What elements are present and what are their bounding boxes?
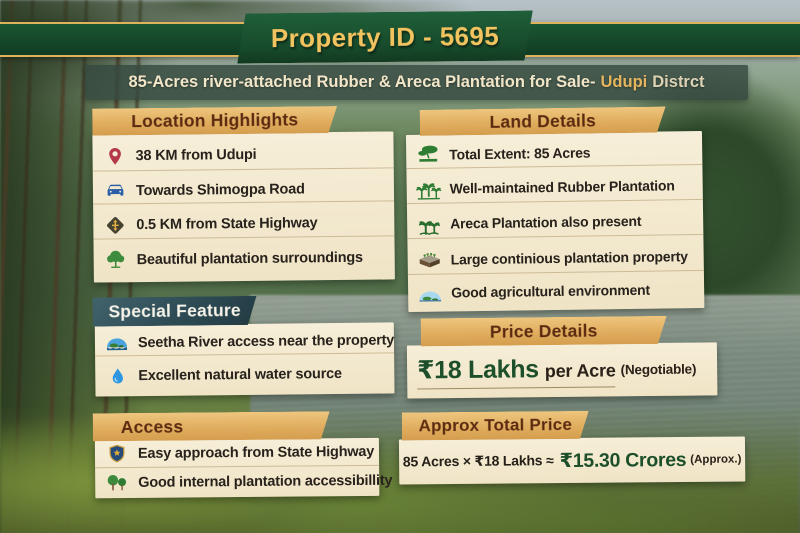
land-details-panel: Total Extent: 85 Acres Well-ma — [406, 131, 704, 312]
list-item: Excellent natural water source — [95, 359, 394, 390]
subtitle-location: Udupi — [601, 73, 648, 92]
list-item: Well-maintained Rubber Plantation — [407, 171, 703, 204]
price-formula: 85 Acres × ₹18 Lakhs ≈ — [403, 452, 554, 470]
two-trees-icon — [103, 472, 131, 495]
price-details-panel: ₹18 Lakhs per Acre (Negotiable) — [407, 342, 718, 398]
section-location-highlights: Location Highlights 38 KM from Udupi Tow… — [92, 105, 395, 282]
areca-palm-icon — [415, 212, 443, 236]
total-price-note: (Approx.) — [690, 453, 741, 465]
tree-icon — [102, 249, 130, 273]
item-text: Seetha River access near the property — [138, 332, 394, 351]
item-text: Areca Plantation also present — [450, 213, 641, 232]
price-unit: per Acre — [545, 360, 616, 382]
price-line: ₹18 Lakhs per Acre — [417, 353, 616, 389]
list-item: Good internal plantation accessibillity — [95, 467, 379, 496]
section-approx-total-price: Approx Total Price 85 Acres × ₹18 Lakhs … — [399, 410, 738, 485]
list-item: Seetha River access near the property — [95, 328, 394, 356]
item-text: Total Extent: 85 Acres — [449, 144, 590, 162]
land-details-title: Land Details — [420, 106, 666, 135]
section-price-details: Price Details ₹18 Lakhs per Acre (Negoti… — [407, 315, 708, 398]
road-sign-icon — [101, 214, 129, 236]
map-pin-icon — [100, 144, 128, 168]
approx-total-price-title: Approx Total Price — [402, 411, 589, 441]
item-text: 0.5 KM from State Highway — [136, 215, 317, 233]
planter-bed-icon — [416, 247, 444, 271]
section-land-details: Land Details Total Extent: 85 Acres — [406, 106, 705, 312]
price-details-title: Price Details — [421, 316, 667, 347]
property-id-text: Property ID - 5695 — [271, 20, 500, 53]
special-feature-panel: Seetha River access near the property Ex… — [95, 322, 395, 396]
land-extent-icon — [414, 143, 442, 166]
access-title: Access — [93, 411, 330, 441]
item-text: Easy approach from State Highway — [138, 444, 374, 462]
list-item: Large continious plantation property — [407, 242, 703, 275]
list-item: 0.5 KM from State Highway — [93, 209, 394, 239]
car-icon — [101, 180, 129, 201]
river-icon — [103, 333, 131, 353]
approx-total-price-panel: 85 Acres × ₹18 Lakhs ≈ ₹15.30 Crores (Ap… — [399, 436, 745, 484]
item-text: Good agricultural environment — [451, 282, 650, 301]
subtitle-suffix: Distrct — [652, 73, 704, 92]
access-panel: Easy approach from State Highway Good in… — [95, 438, 379, 498]
price-note: (Negotiable) — [621, 362, 697, 378]
list-item: Easy approach from State Highway — [95, 439, 379, 468]
item-text: Well-maintained Rubber Plantation — [450, 178, 675, 197]
item-text: Beautiful plantation surroundings — [137, 250, 363, 268]
property-poster: Property ID - 5695 85-Acres river-attach… — [0, 0, 800, 533]
subtitle-main: 85-Acres river-attached Rubber & Areca P… — [128, 73, 595, 92]
section-title-text: Access — [121, 416, 184, 438]
list-item: Total Extent: 85 Acres — [406, 137, 702, 169]
section-special-feature: Special Feature Seetha River access near… — [92, 294, 394, 396]
subtitle-bar: 85-Acres river-attached Rubber & Areca P… — [85, 65, 748, 100]
rubber-plantation-icon — [415, 177, 443, 201]
section-title-text: Approx Total Price — [418, 415, 572, 436]
property-id-banner: Property ID - 5695 — [237, 10, 534, 63]
list-item: Beautiful plantation surroundings — [94, 244, 395, 275]
price-value: ₹18 Lakhs — [417, 354, 539, 385]
list-item: Towards Shimogpa Road — [93, 176, 394, 205]
item-text: Towards Shimogpa Road — [136, 181, 305, 199]
list-item: Areca Plantation also present — [407, 206, 703, 239]
section-title-text: Location Highlights — [131, 109, 298, 132]
list-item: 38 KM from Udupi — [92, 139, 393, 171]
total-price-value: ₹15.30 Crores — [559, 447, 686, 472]
item-text: Excellent natural water source — [138, 366, 342, 384]
landscape-icon — [416, 282, 444, 303]
item-text: Large continious plantation property — [451, 248, 688, 267]
location-highlights-title: Location Highlights — [92, 106, 337, 136]
section-title-text: Land Details — [489, 110, 596, 132]
section-title-text: Special Feature — [108, 300, 241, 322]
section-title-text: Price Details — [490, 320, 598, 342]
item-text: Good internal plantation accessibillity — [138, 473, 392, 491]
water-drop-icon — [103, 364, 131, 388]
list-item: Good agricultural environment — [408, 277, 704, 306]
item-text: 38 KM from Udupi — [136, 146, 257, 163]
special-feature-title: Special Feature — [92, 296, 256, 327]
section-access: Access Easy approach from State Highway — [93, 411, 395, 499]
location-highlights-panel: 38 KM from Udupi Towards Shimogpa Road — [92, 131, 395, 282]
shield-icon — [103, 443, 131, 465]
